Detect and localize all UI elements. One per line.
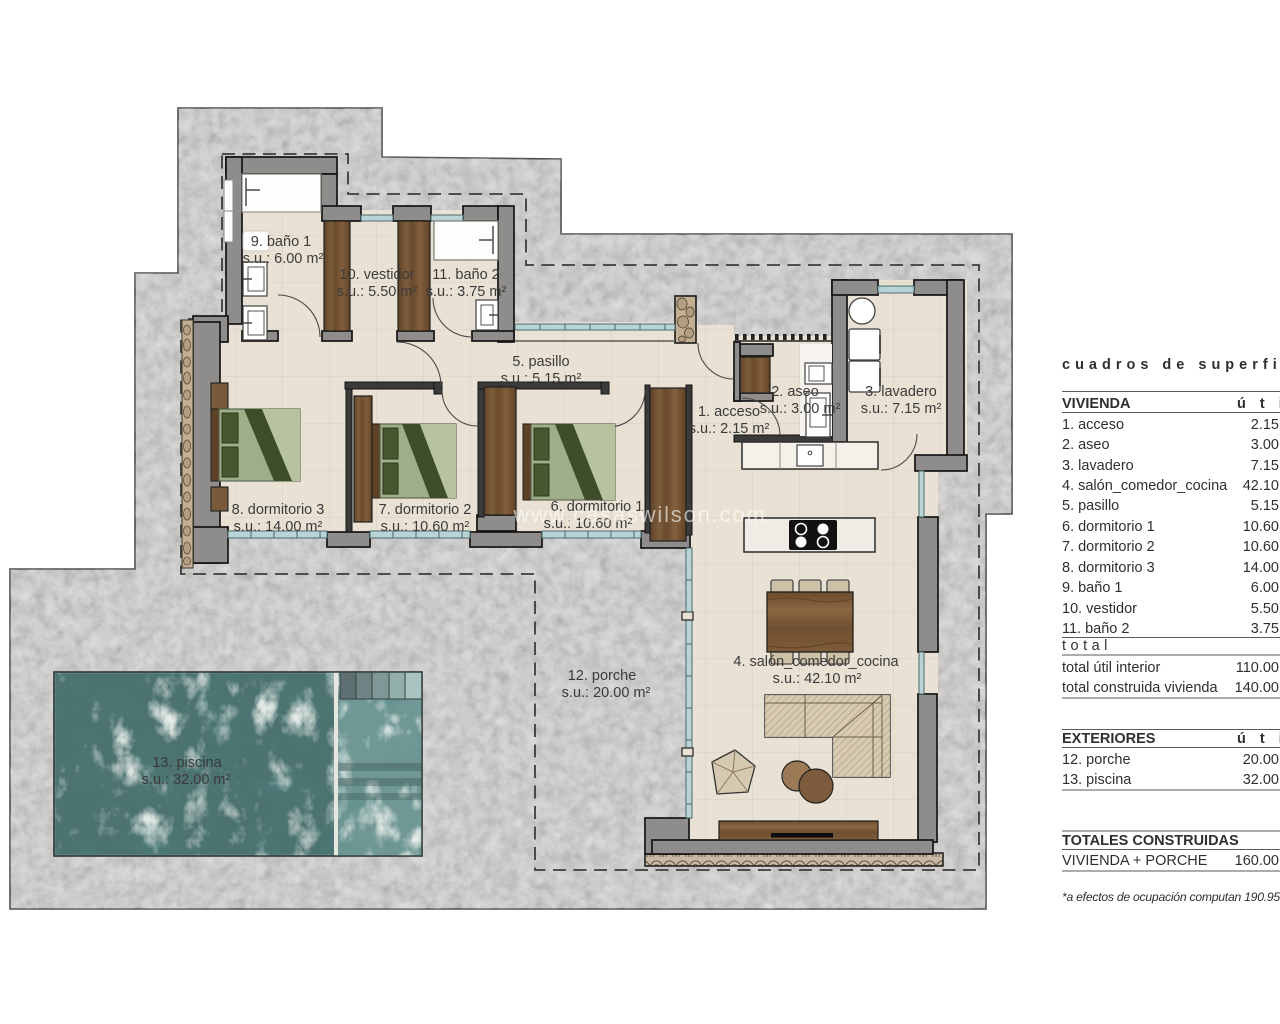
svg-text:2. aseo: 2. aseo [771, 384, 819, 400]
svg-text:10.60: 10.60 [1243, 539, 1279, 555]
svg-text:6. dormitorio 1: 6. dormitorio 1 [1062, 519, 1155, 535]
svg-text:total útil interior: total útil interior [1062, 660, 1160, 676]
svg-text:s.u.: 6.00 m²: s.u.: 6.00 m² [243, 251, 324, 267]
svg-text:s.u.: 5.15 m²: s.u.: 5.15 m² [501, 371, 582, 387]
svg-text:s.u.: 7.15 m²: s.u.: 7.15 m² [861, 401, 942, 417]
svg-text:3.00: 3.00 [1251, 437, 1279, 453]
svg-text:8. dormitorio 3: 8. dormitorio 3 [232, 502, 325, 518]
svg-text:10. vestidor: 10. vestidor [340, 267, 415, 283]
svg-text:11. baño 2: 11. baño 2 [1062, 621, 1129, 637]
svg-text:ú t i l: ú t i l [1237, 731, 1280, 747]
svg-text:7.15: 7.15 [1251, 458, 1279, 474]
svg-text:14.00: 14.00 [1243, 560, 1279, 576]
svg-text:11. baño 2: 11. baño 2 [432, 267, 499, 283]
svg-text:42.10: 42.10 [1243, 478, 1279, 494]
svg-text:32.00: 32.00 [1243, 772, 1279, 788]
svg-text:9. baño 1: 9. baño 1 [1062, 580, 1122, 596]
svg-text:13. piscina: 13. piscina [1062, 772, 1132, 788]
svg-text:9. baño 1: 9. baño 1 [251, 234, 311, 250]
svg-text:20.00: 20.00 [1243, 752, 1279, 768]
svg-text:160.00: 160.00 [1235, 853, 1279, 869]
svg-text:5.50: 5.50 [1251, 601, 1279, 617]
svg-text:*a efectos de ocupación comput: *a efectos de ocupación computan 190.95 [1062, 890, 1280, 904]
svg-text:s.u.: 20.00 m²: s.u.: 20.00 m² [562, 685, 651, 701]
svg-text:12. porche: 12. porche [1062, 752, 1131, 768]
svg-text:10. vestidor: 10. vestidor [1062, 601, 1137, 617]
svg-text:s.u.: 14.00 m²: s.u.: 14.00 m² [234, 519, 323, 535]
svg-text:13. piscina: 13. piscina [152, 755, 222, 771]
svg-text:7. dormitorio 2: 7. dormitorio 2 [1062, 539, 1155, 555]
svg-text:4. salón_comedor_cocina: 4. salón_comedor_cocina [1062, 478, 1228, 494]
svg-text:5. pasillo: 5. pasillo [1062, 498, 1119, 514]
svg-text:2. aseo: 2. aseo [1062, 437, 1110, 453]
svg-text:4. salón_comedor_cocina: 4. salón_comedor_cocina [733, 654, 899, 670]
svg-text:s.u.: 32.00 m²: s.u.: 32.00 m² [142, 772, 231, 788]
svg-text:s.u.: 42.10 m²: s.u.: 42.10 m² [773, 671, 862, 687]
svg-text:EXTERIORES: EXTERIORES [1062, 731, 1156, 747]
svg-text:s.u.: 3.00 m²: s.u.: 3.00 m² [760, 401, 841, 417]
svg-text:VIVIENDA + PORCHE: VIVIENDA + PORCHE [1062, 853, 1208, 869]
svg-text:110.00: 110.00 [1236, 660, 1279, 676]
svg-text:total: total [1062, 638, 1112, 654]
svg-text:s.u.: 3.75 m²: s.u.: 3.75 m² [426, 284, 507, 300]
svg-text:2.15: 2.15 [1251, 417, 1279, 433]
svg-text:ú t i l: ú t i l [1237, 396, 1280, 412]
svg-text:12. porche: 12. porche [568, 668, 637, 684]
svg-text:10.60: 10.60 [1243, 519, 1279, 535]
svg-text:3.75: 3.75 [1251, 621, 1279, 637]
svg-text:140.00: 140.00 [1235, 680, 1279, 696]
svg-text:5.15: 5.15 [1251, 498, 1279, 514]
svg-text:1. acceso: 1. acceso [698, 404, 760, 420]
svg-text:s.u.: 5.50 m²: s.u.: 5.50 m² [337, 284, 418, 300]
svg-text:s.u.: 2.15 m²: s.u.: 2.15 m² [689, 421, 770, 437]
svg-text:s.u.: 10.60 m²: s.u.: 10.60 m² [381, 519, 470, 535]
svg-text:1. acceso: 1. acceso [1062, 417, 1124, 433]
svg-text:5. pasillo: 5. pasillo [512, 354, 569, 370]
svg-text:3. lavadero: 3. lavadero [1062, 458, 1134, 474]
svg-text:8. dormitorio 3: 8. dormitorio 3 [1062, 560, 1155, 576]
svg-text:7. dormitorio 2: 7. dormitorio 2 [379, 502, 472, 518]
svg-text:cuadros de superficie: cuadros de superficie [1062, 357, 1280, 373]
svg-text:www.casaswilson.com: www.casaswilson.com [512, 502, 766, 527]
svg-text:VIVIENDA: VIVIENDA [1062, 396, 1131, 412]
svg-text:6.00: 6.00 [1251, 580, 1279, 596]
svg-text:total construida vivienda: total construida vivienda [1062, 680, 1218, 696]
svg-text:3. lavadero: 3. lavadero [865, 384, 937, 400]
svg-text:TOTALES CONSTRUIDAS: TOTALES CONSTRUIDAS [1062, 833, 1239, 849]
